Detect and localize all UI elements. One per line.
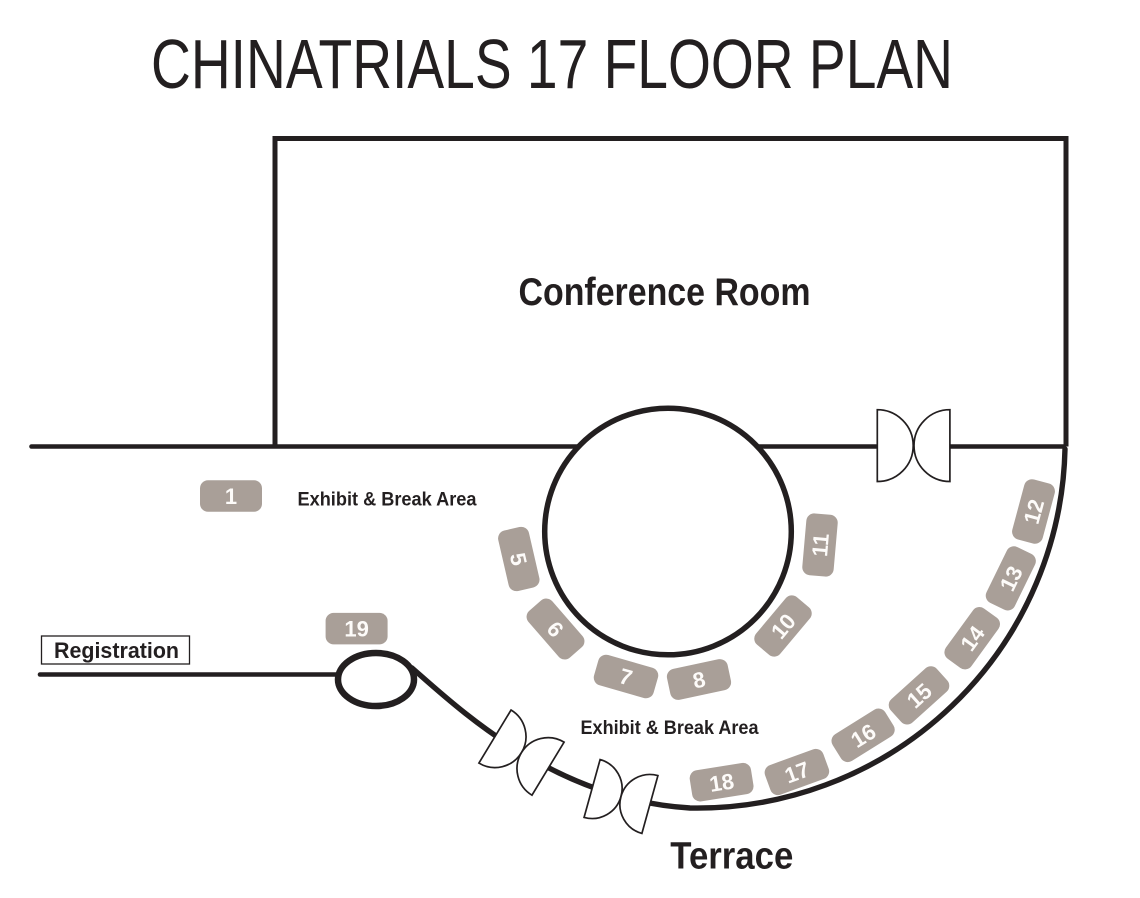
svg-text:19: 19 <box>344 617 368 642</box>
svg-text:1: 1 <box>225 484 237 509</box>
svg-text:Exhibit & Break Area: Exhibit & Break Area <box>298 490 477 511</box>
svg-text:CHINATRIALS 17 FLOOR PLAN: CHINATRIALS 17 FLOOR PLAN <box>151 25 953 103</box>
svg-text:11: 11 <box>807 532 834 557</box>
svg-text:Registration: Registration <box>54 638 179 663</box>
svg-text:Conference Room: Conference Room <box>519 271 811 314</box>
svg-text:18: 18 <box>708 768 736 797</box>
svg-text:Terrace: Terrace <box>670 836 793 878</box>
svg-text:Exhibit & Break Area: Exhibit & Break Area <box>581 718 759 739</box>
